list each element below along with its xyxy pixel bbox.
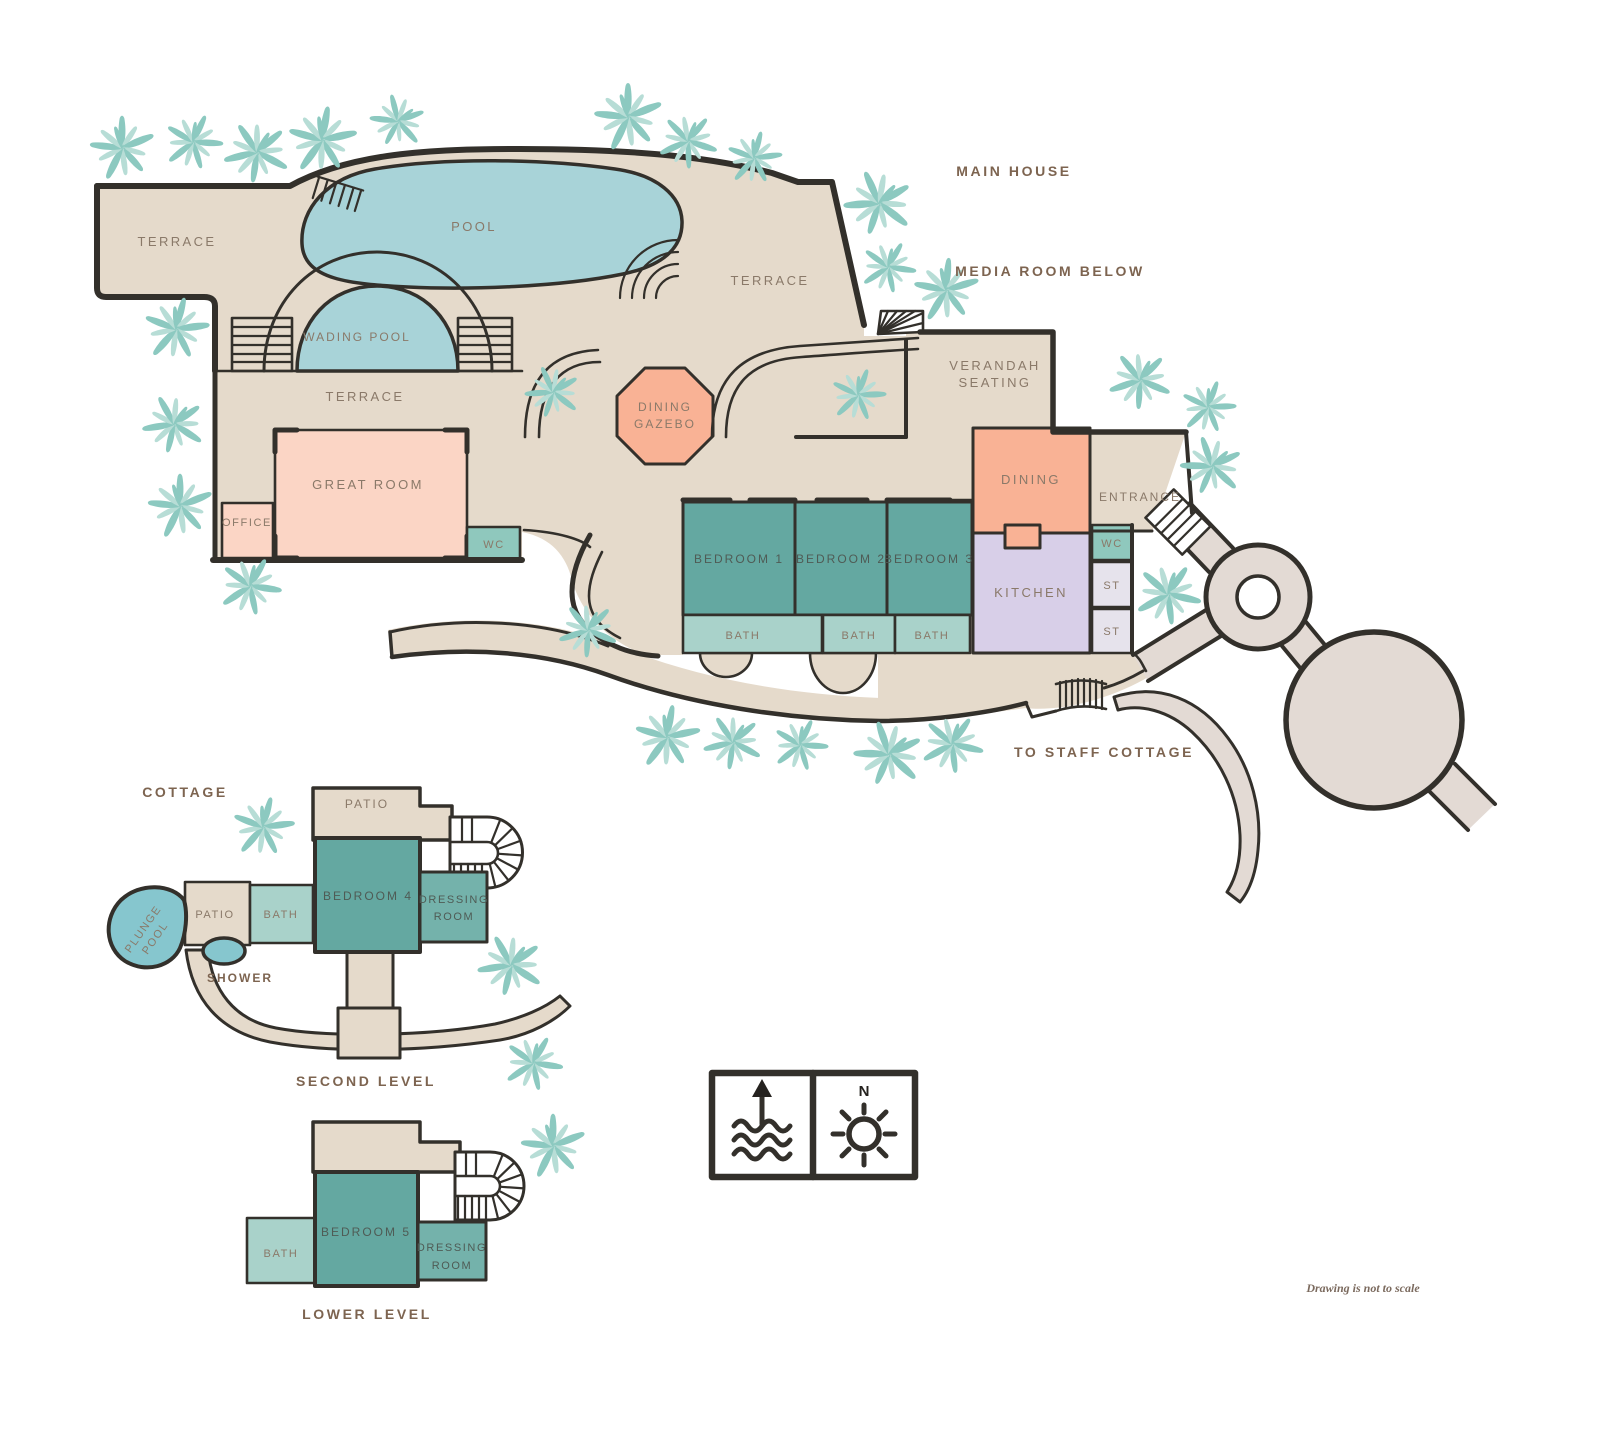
wc-west-label: WC <box>483 539 505 551</box>
wading-pool-steps-right <box>458 318 512 371</box>
room-patio-top <box>313 788 452 840</box>
main-house-title: MAIN HOUSE <box>956 163 1071 179</box>
media-room-title: MEDIA ROOM BELOW <box>955 263 1145 279</box>
palm-tree-icon <box>225 789 301 864</box>
lower-spiral-stairs <box>455 1152 524 1220</box>
st2-label: ST <box>1103 626 1120 638</box>
floor-plan-page: N TERRACE POOL WADING POOL TERRACE TERRA… <box>0 0 1600 1439</box>
bedroom5-label: BEDROOM 5 <box>321 1225 411 1239</box>
north-compass-icon <box>833 1105 895 1165</box>
toilet-stub-arc-1 <box>700 653 752 677</box>
toilet-stub-arc-2 <box>810 653 876 693</box>
driveway-circle <box>1286 632 1462 808</box>
wading-pool-label: WADING POOL <box>303 330 411 344</box>
room-dining-gazebo <box>617 368 713 464</box>
gazebo-label-1: DINING <box>638 400 692 414</box>
bedroom4-label: BEDROOM 4 <box>323 889 413 903</box>
promenade-left-cap <box>390 632 392 657</box>
office-label: OFFICE <box>222 517 272 529</box>
room-shower <box>203 938 245 964</box>
st1-label: ST <box>1103 580 1120 592</box>
dining-label: DINING <box>1001 472 1061 487</box>
legend-box: N <box>712 1073 915 1177</box>
second-level-title: SECOND LEVEL <box>296 1073 436 1089</box>
cottage-title: COTTAGE <box>142 784 228 800</box>
wc-east-label: WC <box>1101 538 1123 550</box>
wading-pool-steps-left <box>232 318 292 371</box>
bath-cottage-label: BATH <box>264 909 299 921</box>
verandah-label-2: SEATING <box>959 375 1032 390</box>
great-room-label: GREAT ROOM <box>312 477 424 492</box>
palm-tree-icon <box>148 474 213 538</box>
bedroom2-label: BEDROOM 2 <box>796 552 886 566</box>
palm-tree-icon <box>131 381 216 467</box>
dining-hearth <box>1005 525 1040 548</box>
palm-tree-icon <box>363 86 433 156</box>
verandah-label-1: VERANDAH <box>949 358 1040 373</box>
shower-label: SHOWER <box>207 971 273 985</box>
bath3-label: BATH <box>915 630 950 642</box>
bath2-label: BATH <box>842 630 877 642</box>
lower-landing <box>313 1122 460 1172</box>
media-room-stairs <box>878 311 923 334</box>
staff-cottage-title: TO STAFF COTTAGE <box>1014 744 1194 760</box>
dressing-lower-label-2: ROOM <box>432 1260 473 1272</box>
lower-level-title: LOWER LEVEL <box>302 1306 432 1322</box>
palm-tree-icon <box>629 700 704 775</box>
terrace-mid-label: TERRACE <box>326 389 405 404</box>
palm-tree-icon <box>90 116 155 180</box>
pool-label: POOL <box>451 219 497 234</box>
bedroom1-label: BEDROOM 1 <box>694 552 784 566</box>
patio-top-label: PATIO <box>345 797 389 811</box>
palm-tree-icon <box>136 289 216 368</box>
dressing-lower-label-1: DRESSING <box>417 1242 487 1254</box>
bath1-label: BATH <box>726 630 761 642</box>
kitchen-label: KITCHEN <box>994 585 1068 600</box>
dressing-cottage-label-1: DRESSING <box>419 894 489 906</box>
floor-plan-canvas: N TERRACE POOL WADING POOL TERRACE TERRA… <box>0 0 1600 1439</box>
cottage-second-level <box>109 788 570 1058</box>
entrance-label: ENTRANCE <box>1099 490 1181 504</box>
palm-tree-icon <box>594 83 663 151</box>
palm-tree-icon <box>851 230 926 304</box>
room-dressing-cottage <box>420 872 487 942</box>
palm-tree-icon <box>521 1114 586 1178</box>
terrace-nw-label: TERRACE <box>138 234 217 249</box>
room-great-room <box>275 430 467 558</box>
north-label: N <box>859 1083 870 1100</box>
terrace-east-label: TERRACE <box>731 273 810 288</box>
cottage-stem <box>347 950 393 1010</box>
bedroom3-label: BEDROOM 3 <box>884 552 974 566</box>
scale-note: Drawing is not to scale <box>1305 1281 1420 1295</box>
cottage-stem-foot <box>338 1008 400 1058</box>
bath-lower-label: BATH <box>264 1248 299 1260</box>
gazebo-label-2: GAZEBO <box>634 417 696 431</box>
palm-tree-icon <box>1097 337 1184 424</box>
cottage-lower-level <box>247 1122 524 1286</box>
palm-tree-icon <box>155 104 232 181</box>
roundabout-island <box>1237 576 1279 618</box>
dressing-cottage-label-2: ROOM <box>434 911 475 923</box>
room-office <box>222 503 273 558</box>
staff-cottage-path <box>1114 692 1259 902</box>
patio-cottage-label: PATIO <box>195 909 234 921</box>
